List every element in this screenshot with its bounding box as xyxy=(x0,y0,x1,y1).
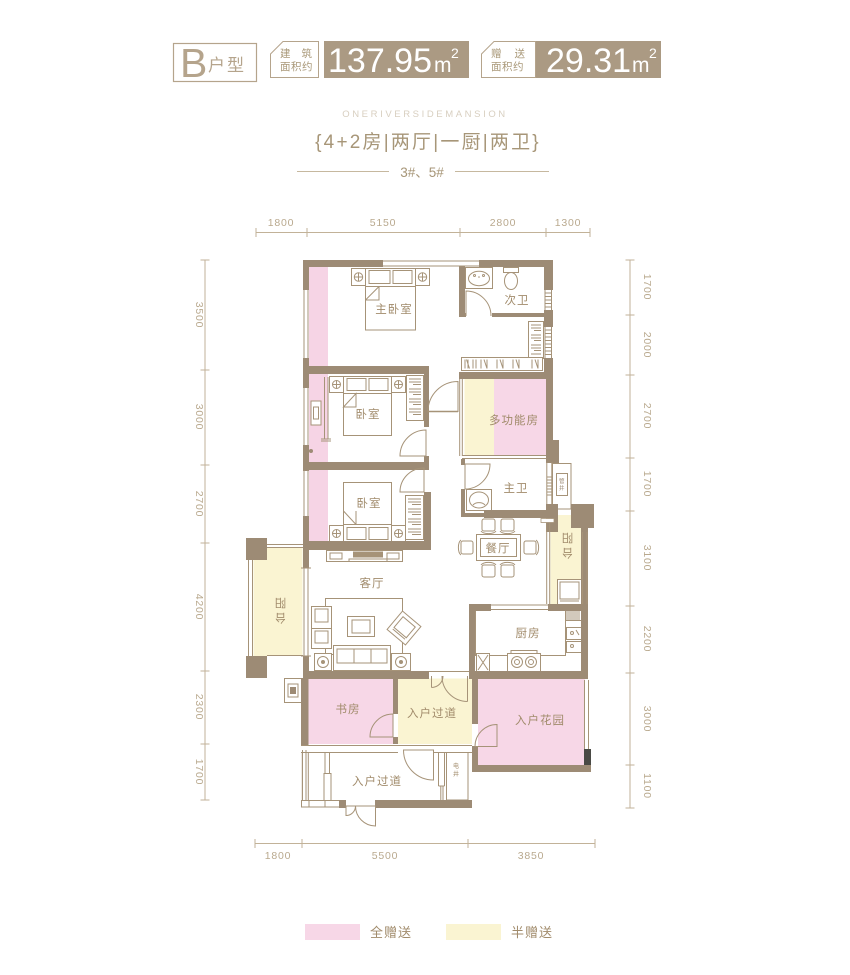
svg-text:29.31: 29.31 xyxy=(546,42,631,80)
svg-text:3000: 3000 xyxy=(193,404,205,431)
svg-text:2200: 2200 xyxy=(641,626,653,653)
svg-text:3100: 3100 xyxy=(641,545,653,572)
svg-text:多功能房: 多功能房 xyxy=(489,413,539,427)
svg-text:2: 2 xyxy=(451,45,459,61)
svg-text:主卧室: 主卧室 xyxy=(375,302,413,316)
svg-text:客厅: 客厅 xyxy=(360,576,385,590)
svg-text:电: 电 xyxy=(453,762,459,770)
svg-text:m: m xyxy=(632,54,650,77)
svg-text:ONERIVERSIDEMANSION: ONERIVERSIDEMANSION xyxy=(342,109,508,120)
svg-text:3000: 3000 xyxy=(641,706,653,733)
svg-text:阳: 阳 xyxy=(274,596,287,609)
svg-text:建筑: 建筑 xyxy=(280,47,323,60)
svg-text:2800: 2800 xyxy=(490,217,517,229)
svg-text:1700: 1700 xyxy=(641,471,653,498)
svg-text:户型: 户型 xyxy=(208,56,246,75)
svg-text:书房: 书房 xyxy=(336,703,361,716)
svg-text:m: m xyxy=(434,54,452,77)
svg-text:3#、5#: 3#、5# xyxy=(400,165,444,180)
svg-text:2: 2 xyxy=(649,45,657,61)
svg-text:B: B xyxy=(180,40,207,86)
svg-text:5500: 5500 xyxy=(372,850,399,862)
svg-text:全赠送: 全赠送 xyxy=(370,925,412,940)
svg-text:主卫: 主卫 xyxy=(504,482,529,495)
svg-text:1300: 1300 xyxy=(555,217,582,229)
svg-text:卧室: 卧室 xyxy=(356,407,381,421)
svg-text:井: 井 xyxy=(559,484,565,492)
svg-text:2700: 2700 xyxy=(641,403,653,430)
svg-text:1700: 1700 xyxy=(193,759,205,786)
svg-text:1800: 1800 xyxy=(268,217,295,229)
svg-text:2700: 2700 xyxy=(193,491,205,518)
svg-text:管: 管 xyxy=(559,477,565,485)
svg-text:厨房: 厨房 xyxy=(516,627,541,640)
svg-text:次卫: 次卫 xyxy=(505,293,530,307)
svg-text:入户过道: 入户过道 xyxy=(407,706,457,720)
svg-text:3850: 3850 xyxy=(518,850,545,862)
svg-text:阳: 阳 xyxy=(561,531,574,544)
svg-text:半赠送: 半赠送 xyxy=(511,925,553,940)
svg-text:{4+2房|两厅|一厨|两卫}: {4+2房|两厅|一厨|两卫} xyxy=(315,131,541,153)
svg-text:1700: 1700 xyxy=(641,274,653,301)
svg-text:台: 台 xyxy=(274,611,287,625)
svg-text:1800: 1800 xyxy=(265,850,292,862)
svg-text:面积约: 面积约 xyxy=(280,60,313,73)
svg-text:入户花园: 入户花园 xyxy=(515,713,565,727)
svg-text:井: 井 xyxy=(453,770,459,778)
svg-text:4200: 4200 xyxy=(193,594,205,621)
svg-text:1100: 1100 xyxy=(641,773,653,799)
svg-text:入户过道: 入户过道 xyxy=(352,774,402,788)
svg-text:赠送: 赠送 xyxy=(491,47,538,60)
svg-text:2300: 2300 xyxy=(193,694,205,721)
svg-text:餐厅: 餐厅 xyxy=(486,541,511,555)
svg-text:面积约: 面积约 xyxy=(491,60,524,73)
svg-text:卧室: 卧室 xyxy=(357,496,382,510)
svg-text:台: 台 xyxy=(561,546,574,560)
svg-text:137.95: 137.95 xyxy=(328,42,432,80)
svg-text:5150: 5150 xyxy=(370,217,397,229)
svg-text:3500: 3500 xyxy=(193,302,205,329)
svg-text:2000: 2000 xyxy=(641,332,653,359)
